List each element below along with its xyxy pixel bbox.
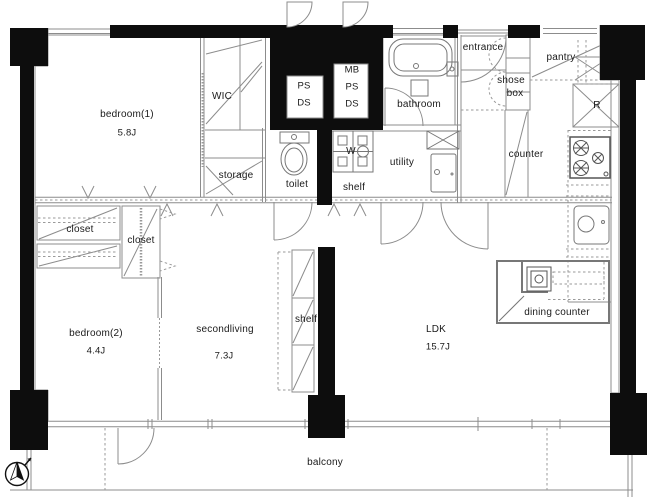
vanity-sink-icon	[427, 131, 459, 192]
toilet-icon	[280, 132, 309, 175]
utility-door-arc	[381, 202, 423, 244]
room-label-ldk: LDK	[426, 325, 446, 335]
shaft2-ps-label: PS	[345, 82, 358, 92]
dining-counter-label: dining counter	[524, 308, 590, 318]
room-label-balcony: balcony	[307, 458, 343, 468]
room-label-bedroom1: bedroom(1)	[100, 110, 154, 120]
stove-icon	[570, 137, 610, 178]
shaft-door-arc	[343, 2, 368, 27]
closet-a-label: closet	[66, 225, 93, 235]
closet-b-label: closet	[127, 236, 154, 246]
refrigerator-label: R	[593, 101, 600, 111]
room-label-toilet: toilet	[286, 180, 308, 190]
room-label-entrance: entrance	[463, 43, 504, 53]
hob-icon	[527, 267, 551, 291]
area-label-bedroom1: 5.8J	[118, 128, 137, 138]
balcony-door-arc	[118, 428, 154, 464]
hall-door-arc	[441, 202, 488, 249]
floor-plan-drawing	[0, 0, 647, 498]
shoebox-label-line2: box	[507, 89, 524, 99]
shoebox-label-line1: shose	[497, 76, 525, 86]
shaft-door-arc	[287, 2, 312, 27]
room-label-bedroom2: bedroom(2)	[69, 329, 123, 339]
room-label-pantry: pantry	[547, 53, 576, 63]
shaft1-ds-label: DS	[297, 98, 311, 108]
kitchen-sink-icon	[574, 206, 609, 244]
counter-label: counter	[509, 150, 544, 160]
toilet-door-arc	[274, 202, 312, 240]
bathtub-icon	[389, 39, 458, 96]
area-label-ldk: 15.7J	[426, 342, 450, 352]
room-label-wic: WIC	[212, 92, 232, 102]
area-label-secondliving: 7.3J	[215, 351, 234, 361]
room-label-secondliving: secondliving	[196, 325, 253, 335]
room-label-storage: storage	[219, 171, 254, 181]
room-label-utility: utility	[390, 158, 414, 168]
utility-shelf-label: shelf	[343, 183, 365, 193]
floor-plan: bedroom(1) 5.8J WIC storage PS DS MB PS …	[0, 0, 647, 498]
shaft1-ps-label: PS	[297, 81, 310, 91]
shaft2-ds-label: DS	[345, 99, 359, 109]
room-label-bathroom: bathroom	[397, 100, 441, 110]
area-label-bedroom2: 4.4J	[87, 346, 106, 356]
living-shelf-label: shelf	[295, 315, 317, 325]
washer-label: W	[346, 147, 356, 157]
shaft2-mb-label: MB	[345, 65, 360, 75]
